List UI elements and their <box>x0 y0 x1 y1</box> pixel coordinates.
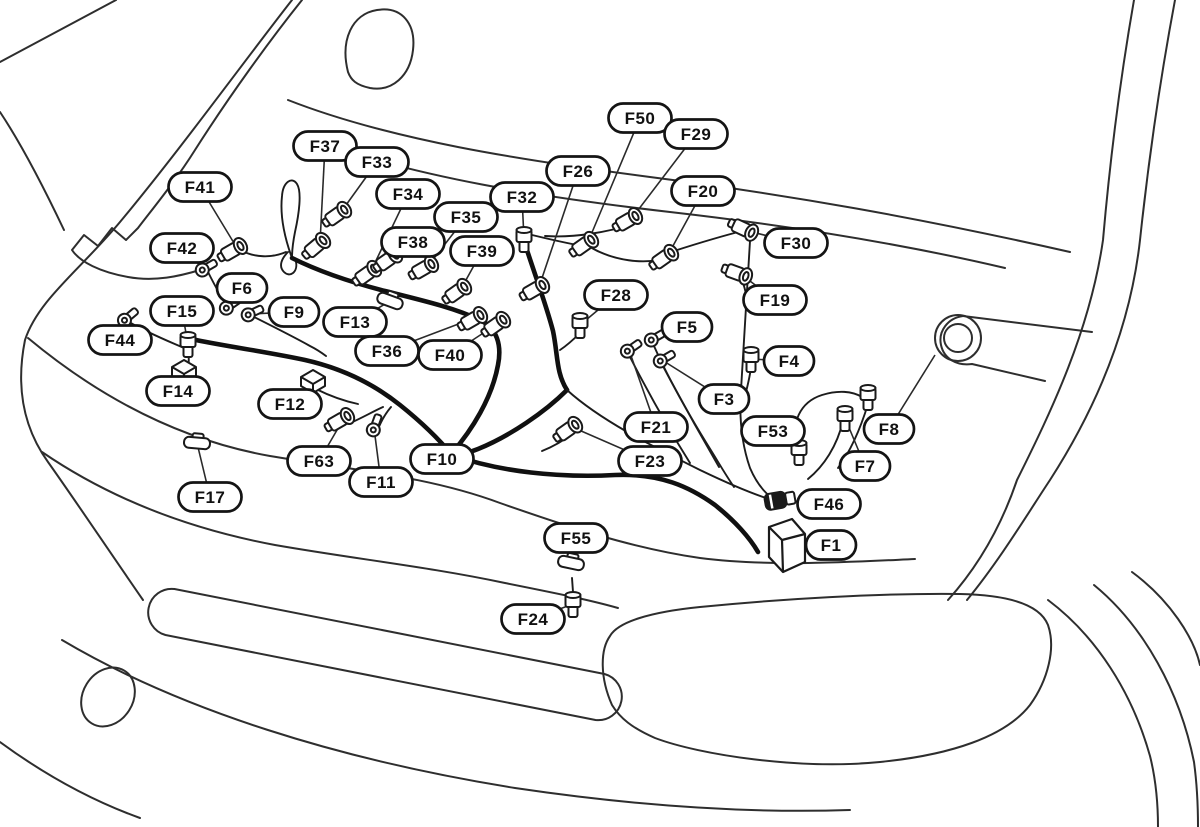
connector-label-F50: F50 <box>609 104 672 133</box>
connector-F17 <box>184 432 211 449</box>
label-text: F29 <box>681 125 712 144</box>
label-text: F9 <box>284 303 305 322</box>
connector-label-F28: F28 <box>585 281 648 310</box>
connector-label-F11: F11 <box>350 468 413 497</box>
label-text: F55 <box>561 529 592 548</box>
connector-F24 <box>566 592 581 617</box>
wiring-diagram-canvas: F37F33F41F34F32F35F38F39F42F50F29F26F20F… <box>0 0 1200 827</box>
body-cowl-vent-left <box>940 316 1045 381</box>
body-mirror-blob <box>346 9 414 88</box>
connector-label-F23: F23 <box>619 447 682 476</box>
label-text: F28 <box>601 286 632 305</box>
label-text: F24 <box>518 610 549 629</box>
label-text: F10 <box>427 450 458 469</box>
connector-label-F34: F34 <box>377 180 440 209</box>
connector-label-F32: F32 <box>491 183 554 212</box>
label-text: F6 <box>232 279 253 298</box>
body-bottomleft-corner <box>0 742 140 818</box>
connector-F46 <box>764 490 796 511</box>
connector-F1 <box>769 519 805 572</box>
connector-F32 <box>517 227 532 252</box>
connector-F23 <box>550 414 585 446</box>
label-text: F13 <box>340 313 371 332</box>
body-left-cowl-edge <box>0 112 64 230</box>
body-wheel-arch-2 <box>1094 585 1198 827</box>
label-text: F53 <box>758 422 789 441</box>
harness-cross-branch <box>452 390 567 455</box>
connector-F20 <box>646 242 681 274</box>
connector-F35 <box>406 254 441 284</box>
connector-label-F42: F42 <box>151 234 214 263</box>
label-text: F17 <box>195 488 226 507</box>
label-text: F21 <box>641 418 672 437</box>
body-cowl-vent-top <box>963 316 1092 332</box>
label-text: F63 <box>304 452 335 471</box>
connector-label-F29: F29 <box>665 120 728 149</box>
car-body-outline <box>0 0 1200 827</box>
connector-label-F35: F35 <box>435 203 498 232</box>
connector-label-F44: F44 <box>89 326 152 355</box>
body-topleft-corner-line <box>0 0 116 62</box>
label-text: F12 <box>275 395 306 414</box>
connector-label-F36: F36 <box>356 337 419 366</box>
connector-F30 <box>725 214 760 243</box>
connector-F33 <box>319 199 354 231</box>
connector-F29 <box>610 206 645 236</box>
label-text: F8 <box>879 420 900 439</box>
connector-label-F1: F1 <box>806 531 856 560</box>
label-text: F39 <box>467 242 498 261</box>
label-text: F15 <box>167 302 198 321</box>
connector-F63 <box>322 406 357 436</box>
connector-F11 <box>365 413 385 439</box>
label-text: F42 <box>167 239 198 258</box>
body-wheel-arch-1 <box>1048 600 1158 827</box>
connector-label-F12: F12 <box>259 390 322 419</box>
connector-label-F41: F41 <box>169 173 232 202</box>
engine-harness-diagram: F37F33F41F34F32F35F38F39F42F50F29F26F20F… <box>0 0 1200 827</box>
connector-label-F55: F55 <box>545 524 608 553</box>
connector-label-F53: F53 <box>742 417 805 446</box>
connector-extra-0 <box>861 385 876 410</box>
connector-label-F17: F17 <box>179 483 242 512</box>
connector-F37 <box>298 230 333 263</box>
label-text: F34 <box>393 185 424 204</box>
label-text: F11 <box>366 473 396 492</box>
connector-label-F24: F24 <box>502 605 565 634</box>
connector-label-F40: F40 <box>419 341 482 370</box>
connector-label-F26: F26 <box>547 157 610 186</box>
connector-label-F21: F21 <box>625 413 688 442</box>
label-text: F44 <box>105 331 136 350</box>
body-bottom-sweep <box>62 640 850 811</box>
connector-label-F8: F8 <box>864 415 914 444</box>
label-text: F5 <box>677 318 698 337</box>
body-right-apillar-inner <box>967 0 1175 600</box>
label-text: F3 <box>714 390 735 409</box>
label-text: F32 <box>507 188 538 207</box>
label-text: F40 <box>435 346 466 365</box>
connector-F21 <box>618 337 644 361</box>
connector-label-F19: F19 <box>744 286 807 315</box>
wire-f55-f24 <box>572 578 573 592</box>
connector-label-F15: F15 <box>151 297 214 326</box>
label-text: F7 <box>855 457 876 476</box>
harness-main-diagonal <box>521 231 567 390</box>
label-text: F19 <box>760 291 791 310</box>
connector-label-F4: F4 <box>764 347 814 376</box>
connector-label-F14: F14 <box>147 377 210 406</box>
label-text: F4 <box>779 352 800 371</box>
label-text: F46 <box>814 495 845 514</box>
connector-label-F38: F38 <box>382 228 445 257</box>
connector-label-F7: F7 <box>840 452 890 481</box>
body-strut-cap-inner <box>944 324 972 352</box>
connector-F26 <box>517 275 552 305</box>
connector-label-F46: F46 <box>798 490 861 519</box>
label-text: F26 <box>563 162 594 181</box>
body-strut-cap-outer <box>935 315 981 361</box>
body-fog-light <box>70 657 145 736</box>
connector-F7 <box>838 406 853 431</box>
label-text: F50 <box>625 109 656 128</box>
connector-label-F9: F9 <box>269 298 319 327</box>
connector-label-F10: F10 <box>411 445 474 474</box>
connector-F55 <box>557 551 586 571</box>
label-text: F14 <box>163 382 194 401</box>
connector-label-F20: F20 <box>672 177 735 206</box>
label-text: F1 <box>821 536 842 555</box>
connector-label-F33: F33 <box>346 148 409 177</box>
label-text: F41 <box>185 178 216 197</box>
wire-f7-down <box>808 421 843 479</box>
connector-label-F63: F63 <box>288 447 351 476</box>
label-text: F35 <box>451 208 482 227</box>
connector-F39 <box>439 276 474 308</box>
body-wheel-arch-3 <box>1132 572 1200 665</box>
label-text: F23 <box>635 452 666 471</box>
label-text: F30 <box>781 234 812 253</box>
connector-F4 <box>744 347 759 372</box>
connector-label-F39: F39 <box>451 237 514 266</box>
label-text: F38 <box>398 233 429 252</box>
body-right-apillar-outer <box>948 0 1134 600</box>
body-plate-recess <box>603 594 1051 764</box>
connector-F28 <box>573 313 588 338</box>
label-text: F20 <box>688 182 719 201</box>
connector-label-F5: F5 <box>662 313 712 342</box>
connector-label-F3: F3 <box>699 385 749 414</box>
label-text: F36 <box>372 342 403 361</box>
connector-label-F6: F6 <box>217 274 267 303</box>
label-text: F37 <box>310 137 341 156</box>
connector-label-F30: F30 <box>765 229 828 258</box>
connector-label-F13: F13 <box>324 308 387 337</box>
connector-F15 <box>181 332 196 357</box>
label-text: F33 <box>362 153 393 172</box>
